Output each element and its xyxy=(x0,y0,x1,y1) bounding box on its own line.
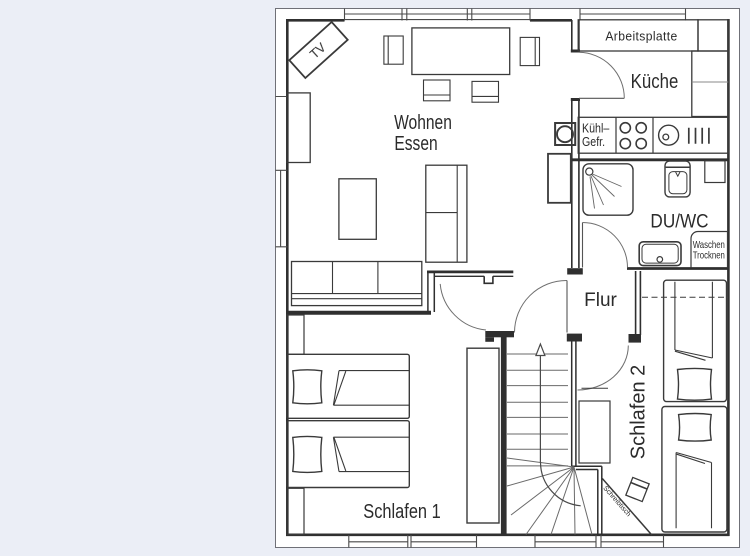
svg-text:Essen: Essen xyxy=(394,132,437,154)
svg-text:Wohnen: Wohnen xyxy=(394,111,452,133)
svg-text:Waschen: Waschen xyxy=(693,239,725,250)
svg-text:Flur: Flur xyxy=(584,290,617,311)
svg-text:Küche: Küche xyxy=(631,69,679,92)
svg-text:DU/WC: DU/WC xyxy=(650,209,708,231)
svg-text:Arbeitsplatte: Arbeitsplatte xyxy=(605,29,677,43)
svg-text:Gefr.: Gefr. xyxy=(582,134,605,149)
svg-text:Schlafen 1: Schlafen 1 xyxy=(363,499,440,522)
svg-text:Trocknen: Trocknen xyxy=(693,250,725,261)
svg-text:Schlafen 2: Schlafen 2 xyxy=(628,365,650,460)
